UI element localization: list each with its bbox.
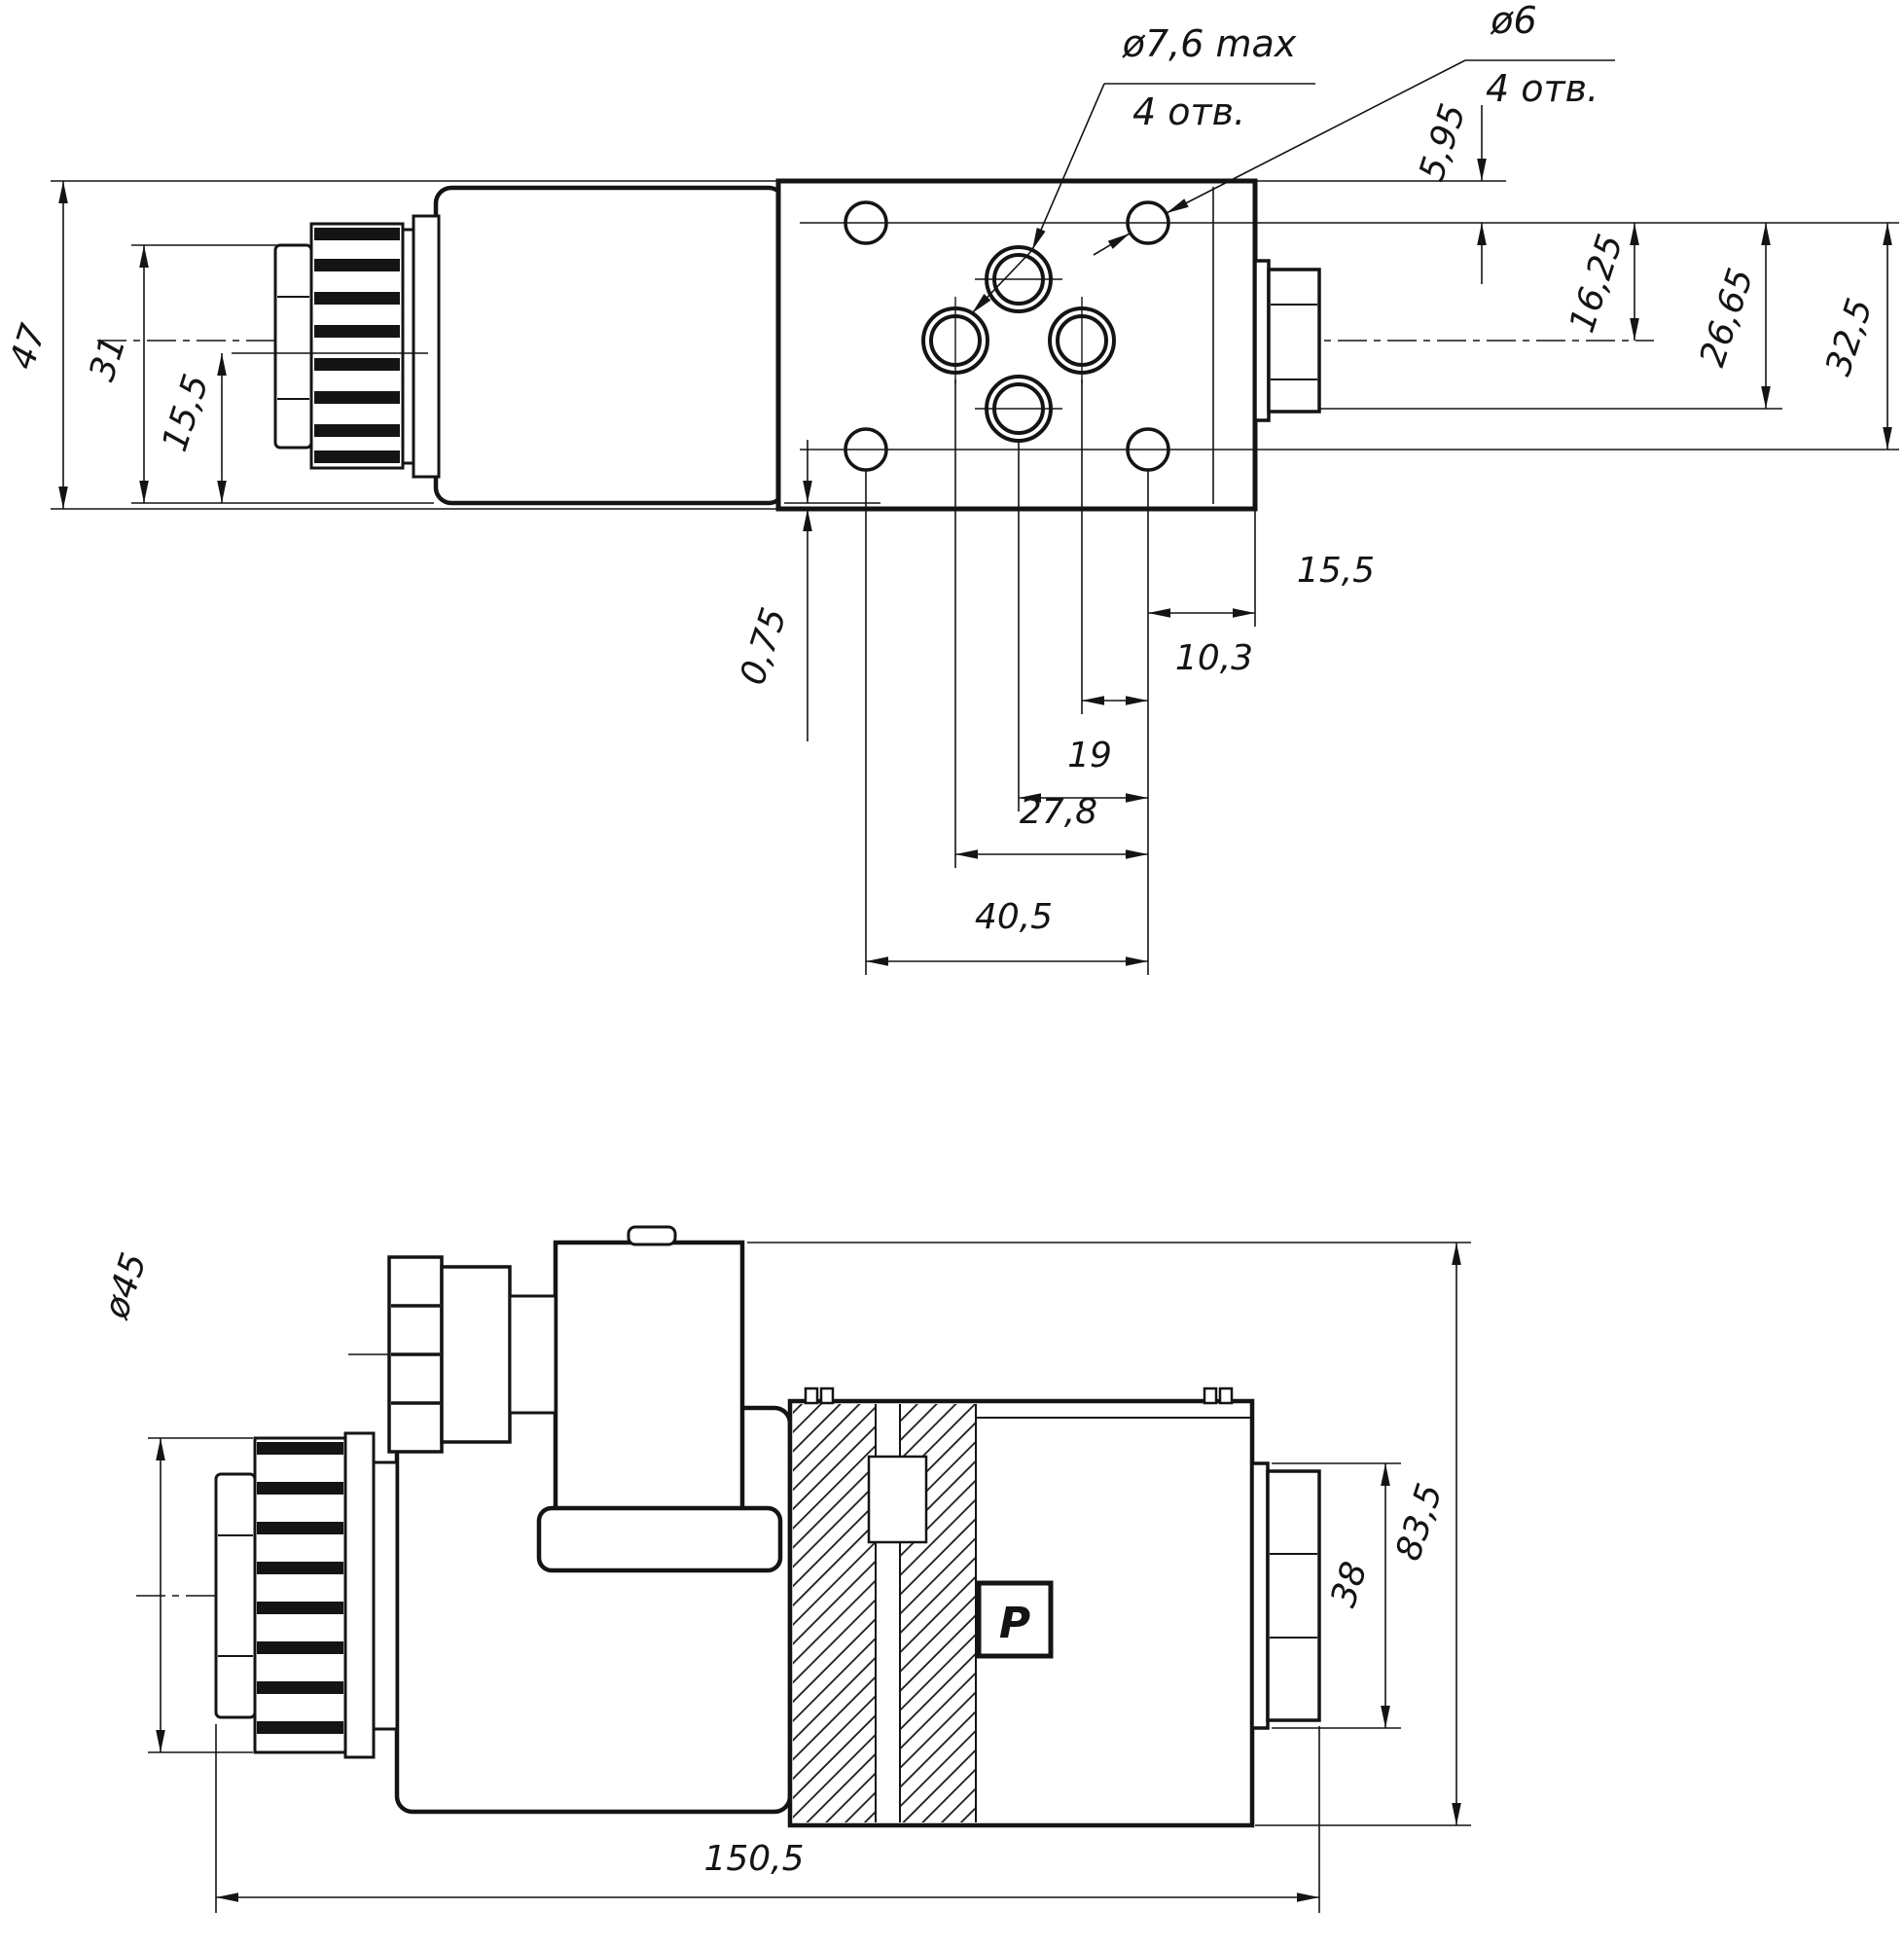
fitting-step-side (1252, 1463, 1268, 1728)
dim-27-8-label: 27,8 (1020, 792, 1097, 832)
screw-tab (821, 1388, 833, 1403)
drawing-sheet: 47 31 15,5 5,95 16,25 26,65 32,5 (0, 0, 1904, 1946)
screw-tab (1204, 1388, 1216, 1403)
dim-83-5-label: 83,5 (1388, 1479, 1451, 1566)
dim-15-5-left-label: 15,5 (155, 370, 217, 456)
dim-40-5-label: 40,5 (975, 897, 1053, 937)
dim-0-75-label: 0,75 (733, 603, 795, 690)
port-qty-label: 4 отв. (1132, 90, 1245, 133)
right-dimensions: 5,95 16,25 26,65 32,5 (1257, 99, 1887, 450)
dim-26-65-label: 26,65 (1693, 264, 1762, 372)
side-view: P (96, 1227, 1471, 1913)
ribbed-connector-side (216, 1433, 397, 1757)
top-view: 47 31 15,5 5,95 16,25 26,65 32,5 (2, 0, 1899, 975)
fitting-nut-top (1269, 270, 1319, 412)
dim-10-3-label: 10,3 (1175, 638, 1253, 678)
hatch-band-left (793, 1404, 876, 1822)
mount-qty-label: 4 отв. (1486, 67, 1599, 110)
connector-end-cap-side (216, 1474, 255, 1717)
dim-31-label: 31 (82, 331, 133, 385)
screw-tab (806, 1388, 817, 1403)
port-diameter-label: ø7,6 max (1122, 22, 1297, 65)
valve-block: P (790, 1388, 1252, 1825)
plug-skirt (539, 1508, 780, 1570)
dim-150-5-label: 150,5 (703, 1839, 804, 1879)
block-notch (869, 1457, 926, 1542)
dim-32-5-label: 32,5 (1818, 294, 1881, 380)
dim-dia45-label: ø45 (96, 1248, 155, 1324)
dim-5-95-label: 5,95 (1412, 99, 1474, 186)
port-mark-letter: P (999, 1599, 1030, 1648)
dim-19-label: 19 (1067, 736, 1112, 775)
dim-15-5-bottom-label: 15,5 (1297, 551, 1375, 591)
plug-body (556, 1243, 742, 1510)
plug-top-tab (629, 1227, 675, 1244)
cable-gland-cap (442, 1267, 510, 1442)
cable-gland-neck (510, 1296, 556, 1413)
connector-flange-outer (413, 216, 439, 477)
valve-technical-drawing: 47 31 15,5 5,95 16,25 26,65 32,5 (0, 0, 1904, 1946)
ribbed-connector-top (275, 224, 403, 468)
solenoid-body-top (436, 188, 784, 503)
screw-tab (1220, 1388, 1232, 1403)
dim-38-label: 38 (1323, 1557, 1375, 1611)
mount-diameter-label: ø6 (1490, 0, 1536, 42)
dim-47-label: 47 (2, 319, 54, 374)
fitting-step-top (1255, 261, 1269, 420)
connector-flange-side (345, 1433, 374, 1757)
dim-16-25-label: 16,25 (1563, 230, 1632, 338)
connector-end-cap (275, 245, 311, 448)
connector-step-side (374, 1462, 397, 1729)
fitting-nut-side (1268, 1471, 1319, 1720)
